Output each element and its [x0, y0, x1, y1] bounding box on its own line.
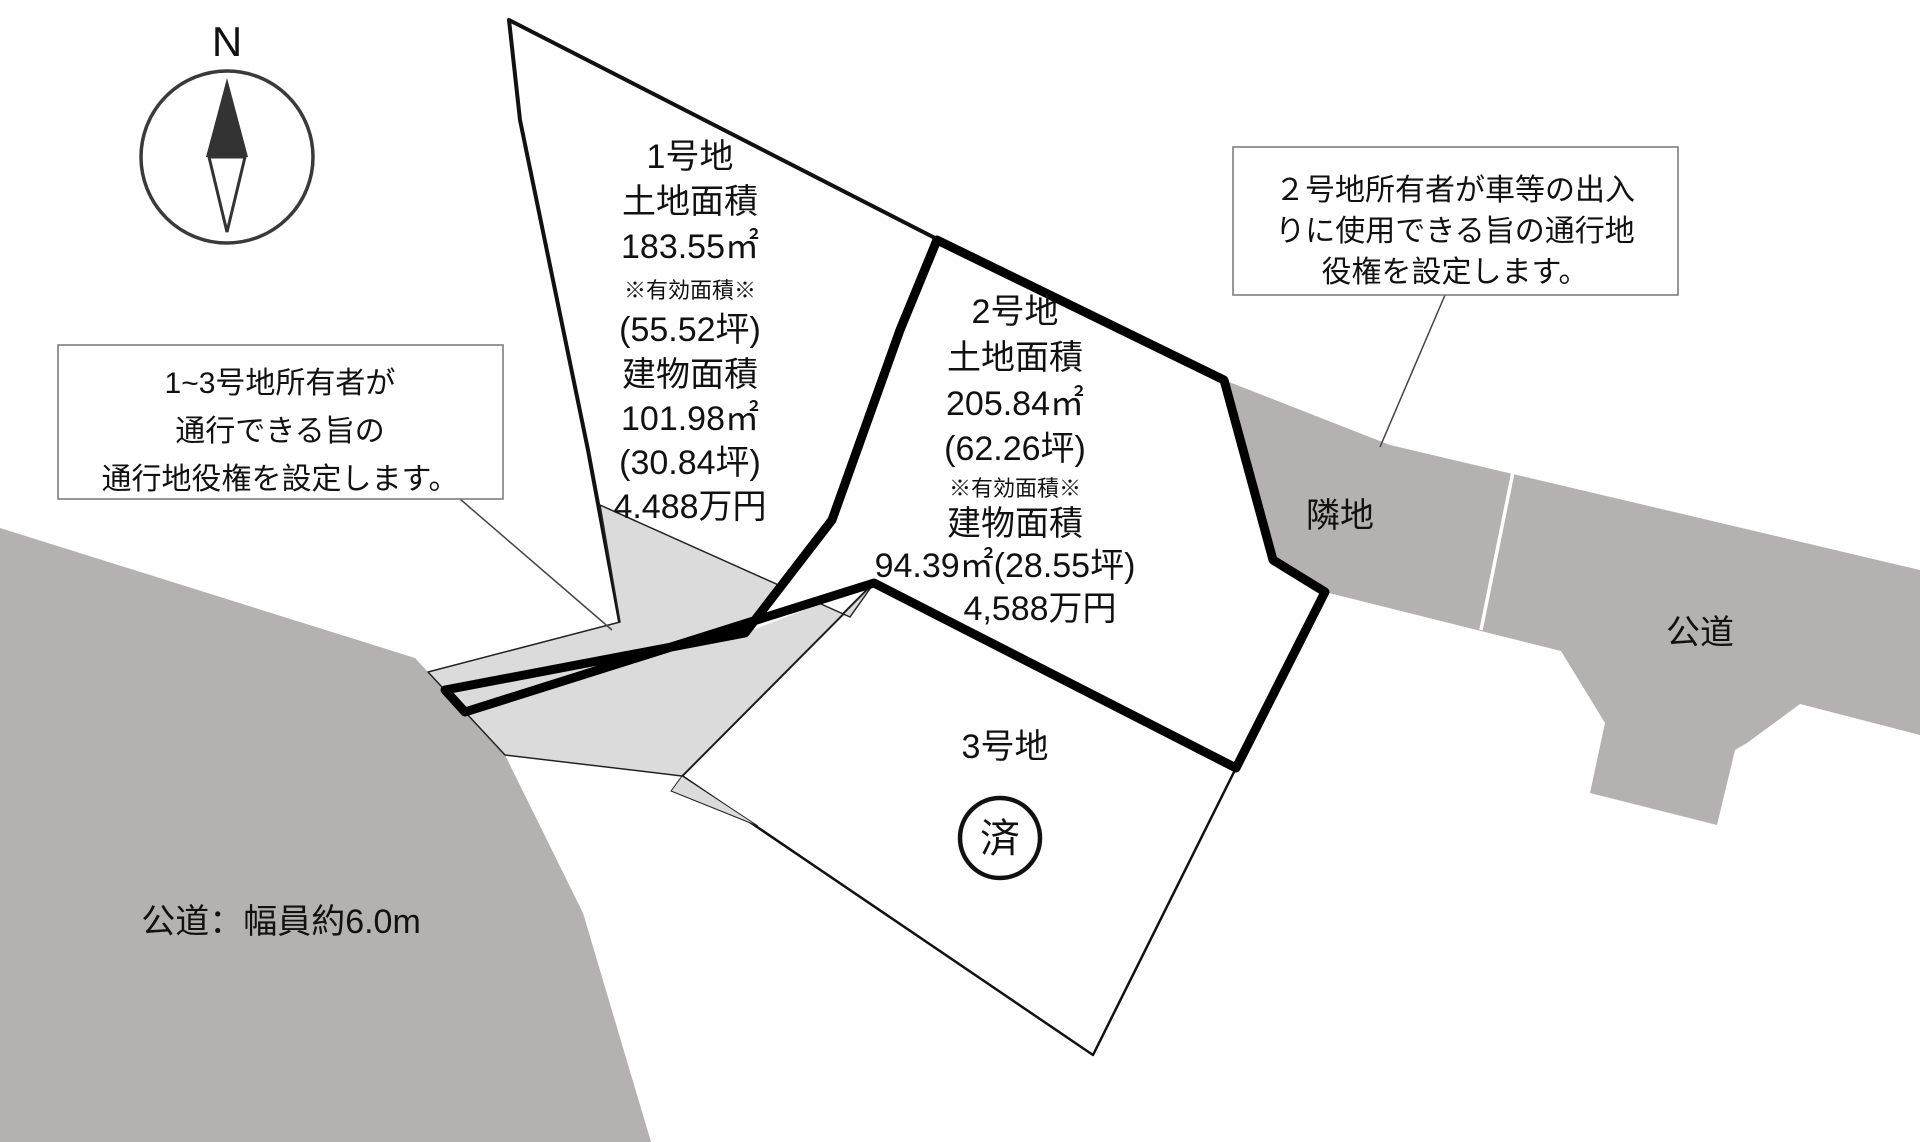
- right-note-line2: りに使用できる旨の通行地: [1275, 215, 1634, 248]
- neighbor-land-label: 隣地: [1306, 497, 1374, 535]
- right-note-line1: ２号地所有者が車等の出入: [1275, 174, 1635, 207]
- lot1-building-area-value: 101.98㎡: [621, 400, 759, 438]
- lot1-land-area-tsubo: (55.52坪): [619, 311, 761, 349]
- lot2-effective-area-note: ※有効面積※: [949, 476, 1081, 501]
- lot2-title: 2号地: [972, 293, 1059, 331]
- site-plan-svg: N 1号地 土地面積 183.55㎡ ※有効面積※ (55.52坪) 建物面積 …: [0, 0, 1920, 1142]
- lot2-land-area-label: 土地面積: [947, 339, 1083, 377]
- lot1-building-area-label: 建物面積: [622, 356, 758, 394]
- lot2-building-area-value: 94.39㎡(28.55坪): [875, 547, 1136, 585]
- left-note-line2: 通行できる旨の: [175, 415, 384, 448]
- public-road-width-label: 公道：幅員約6.0m: [141, 903, 421, 941]
- lot-map-page: N 1号地 土地面積 183.55㎡ ※有効面積※ (55.52坪) 建物面積 …: [0, 0, 1920, 1142]
- public-road-right-label: 公道: [1666, 614, 1734, 652]
- lot1-land-area-value: 183.55㎡: [621, 228, 759, 266]
- lot2-building-area-label: 建物面積: [947, 505, 1083, 543]
- lot1-effective-area-note: ※有効面積※: [624, 278, 756, 303]
- lot2-land-area-tsubo: (62.26坪): [944, 430, 1086, 468]
- right-note-line3: 役権を設定します。: [1322, 256, 1589, 289]
- lot1-price: 4.488万円: [613, 488, 766, 526]
- lot1-title: 1号地: [647, 138, 734, 176]
- lot1-building-area-tsubo: (30.84坪): [619, 444, 761, 482]
- lot2-price: 4,588万円: [963, 590, 1116, 628]
- left-note-line1: 1~3号地所有者が: [165, 367, 396, 400]
- lot3-title: 3号地: [962, 728, 1049, 766]
- left-note-line3: 通行地役権を設定します。: [102, 463, 459, 496]
- right-note-box: ２号地所有者が車等の出入 りに使用できる旨の通行地 役権を設定します。: [1233, 147, 1678, 295]
- sold-stamp-text: 済: [980, 817, 1020, 861]
- lot2-land-area-value: 205.84㎡: [946, 385, 1084, 423]
- lot1-land-area-label: 土地面積: [622, 183, 758, 221]
- lot1-info-text: 1号地 土地面積 183.55㎡ ※有効面積※ (55.52坪) 建物面積 10…: [613, 138, 766, 526]
- compass-north-label: N: [212, 18, 242, 65]
- left-note-box: 1~3号地所有者が 通行できる旨の 通行地役権を設定します。: [58, 345, 503, 499]
